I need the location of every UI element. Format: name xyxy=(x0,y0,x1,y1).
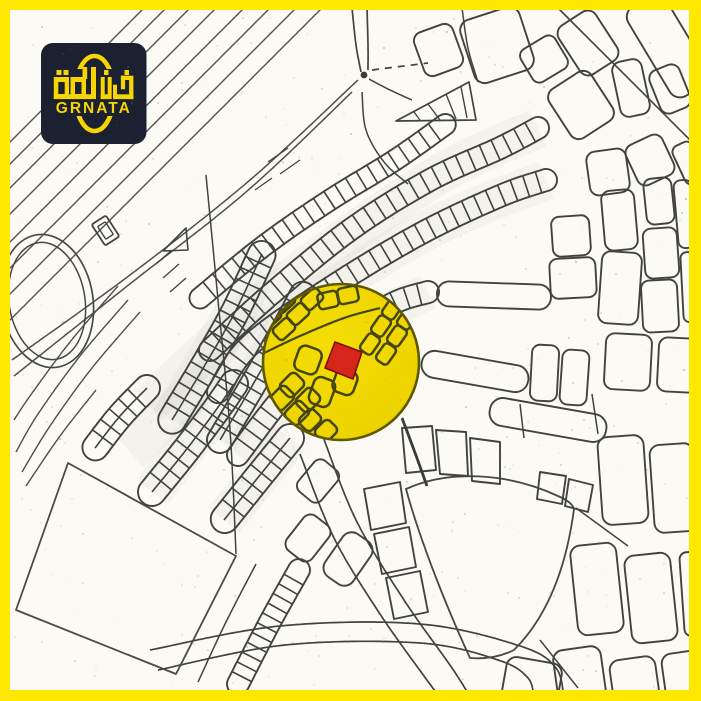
svg-text:GRNATA: GRNATA xyxy=(56,100,132,117)
